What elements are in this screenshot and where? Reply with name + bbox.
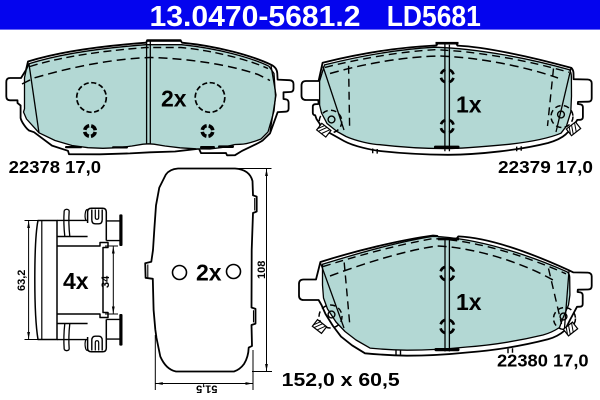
- svg-text:2x: 2x: [161, 86, 187, 112]
- svg-text:34: 34: [100, 275, 112, 288]
- svg-text:1x: 1x: [456, 92, 482, 118]
- svg-text:2x: 2x: [196, 260, 222, 286]
- svg-text:22380 17,0: 22380 17,0: [497, 350, 589, 370]
- svg-text:63,2: 63,2: [16, 270, 28, 291]
- svg-text:LD5681: LD5681: [387, 1, 481, 33]
- svg-text:4x: 4x: [63, 268, 89, 294]
- svg-text:51,5: 51,5: [196, 382, 217, 394]
- svg-text:152,0 x 60,5: 152,0 x 60,5: [282, 370, 400, 390]
- svg-text:1x: 1x: [456, 289, 482, 315]
- svg-text:108: 108: [256, 261, 268, 279]
- svg-text:22378 17,0: 22378 17,0: [9, 157, 102, 177]
- svg-text:22379 17,0: 22379 17,0: [498, 157, 593, 177]
- svg-text:13.0470-5681.2: 13.0470-5681.2: [150, 1, 361, 33]
